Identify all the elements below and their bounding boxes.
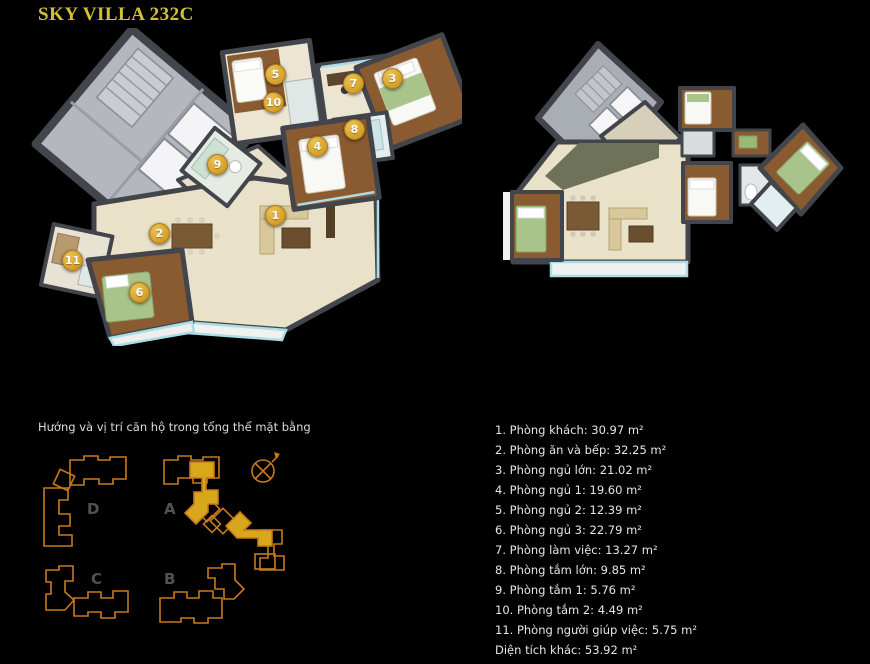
- room-list: 1. Phòng khách: 30.97 m²2. Phòng ăn và b…: [495, 424, 855, 664]
- room-marker-3: 3: [382, 68, 403, 89]
- room-list-item: 4. Phòng ngủ 1: 19.60 m²: [495, 484, 855, 497]
- floorplan-2d: [483, 40, 868, 290]
- room-bedroom: [512, 192, 562, 260]
- room-list-item: Diện tích khác: 53.92 m²: [495, 644, 855, 657]
- room-list-item: 7. Phòng làm việc: 13.27 m²: [495, 544, 855, 557]
- room-list-item: 2. Phòng ăn và bếp: 32.25 m²: [495, 444, 855, 457]
- block-label-b: B: [164, 570, 175, 588]
- block-c-outline: [46, 566, 128, 618]
- room-bath: [682, 130, 714, 156]
- room-marker-7: 7: [343, 73, 364, 94]
- floorplan-2d-art: [483, 40, 868, 290]
- room-bedroom: [683, 163, 731, 222]
- siteplan-caption: Hướng và vị trí căn hộ trong tổng thể mặ…: [38, 420, 311, 434]
- block-label-c: C: [91, 570, 102, 588]
- room-marker-10: 10: [263, 92, 284, 113]
- block-d-outline: [44, 456, 126, 546]
- room-list-item: 11. Phòng người giúp việc: 5.75 m²: [495, 624, 855, 637]
- room-list-item: 8. Phòng tắm lớn: 9.85 m²: [495, 564, 855, 577]
- page-title: SKY VILLA 232C: [38, 4, 194, 26]
- room-list-item: 10. Phòng tắm 2: 4.49 m²: [495, 604, 855, 617]
- room-list-item: 3. Phòng ngủ lớn: 21.02 m²: [495, 464, 855, 477]
- room-list-item: 1. Phòng khách: 30.97 m²: [495, 424, 855, 437]
- room-marker-8: 8: [344, 119, 365, 140]
- room-list-item: 5. Phòng ngủ 2: 12.39 m²: [495, 504, 855, 517]
- floorplan-3d-markers: 1234567891011: [30, 28, 462, 346]
- room-list-item: 6. Phòng ngủ 3: 22.79 m²: [495, 524, 855, 537]
- brochure-page: SKY VILLA 232C: [0, 0, 870, 664]
- compass-icon: [252, 452, 280, 482]
- room-list-item: 9. Phòng tắm 1: 5.76 m²: [495, 584, 855, 597]
- room-bedroom: [680, 88, 734, 130]
- block-label-d: D: [87, 500, 99, 518]
- block-label-a: A: [164, 500, 176, 518]
- floorplan-3d: 1234567891011: [30, 28, 462, 346]
- room-marker-1: 1: [265, 205, 286, 226]
- room-office: [733, 130, 770, 156]
- room-marker-5: 5: [265, 64, 286, 85]
- room-marker-2: 2: [149, 223, 170, 244]
- balcony: [551, 262, 687, 276]
- room-marker-11: 11: [62, 250, 83, 271]
- room-marker-6: 6: [129, 282, 150, 303]
- room-marker-9: 9: [207, 154, 228, 175]
- room-marker-4: 4: [307, 136, 328, 157]
- siteplan: D A C B: [30, 448, 295, 653]
